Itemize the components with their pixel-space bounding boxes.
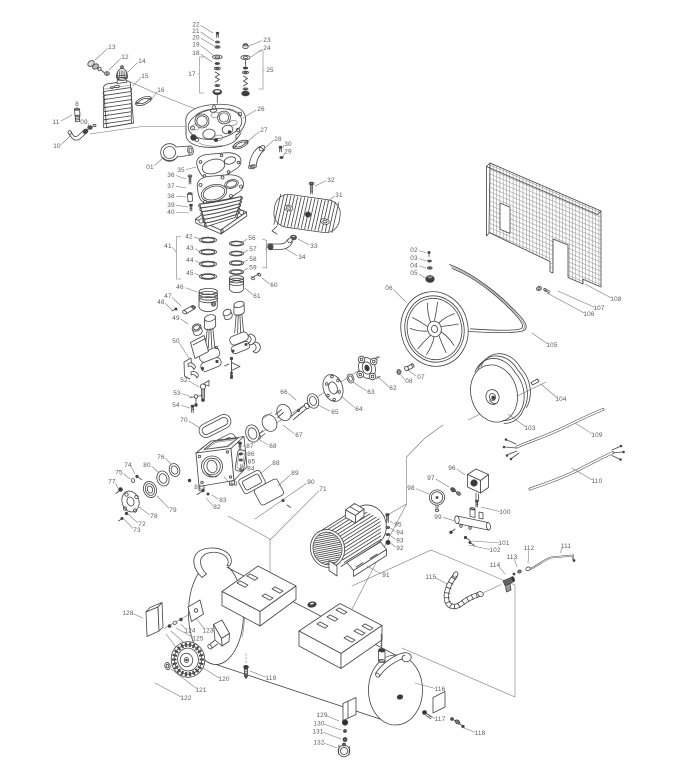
svg-text:129: 129 bbox=[316, 712, 328, 719]
svg-text:101: 101 bbox=[498, 540, 510, 547]
svg-text:58: 58 bbox=[249, 256, 257, 263]
svg-text:83: 83 bbox=[219, 497, 227, 504]
svg-text:91: 91 bbox=[382, 572, 390, 579]
svg-text:64: 64 bbox=[355, 406, 363, 413]
svg-text:61: 61 bbox=[253, 293, 261, 300]
svg-text:76: 76 bbox=[157, 454, 165, 461]
svg-text:119: 119 bbox=[266, 675, 277, 682]
svg-text:125: 125 bbox=[192, 636, 204, 643]
svg-text:30: 30 bbox=[284, 141, 292, 148]
svg-text:20: 20 bbox=[192, 34, 200, 41]
svg-text:107: 107 bbox=[593, 305, 605, 312]
svg-text:08: 08 bbox=[405, 378, 413, 385]
svg-text:23: 23 bbox=[263, 37, 271, 44]
svg-text:90: 90 bbox=[307, 479, 315, 486]
svg-text:79: 79 bbox=[169, 507, 177, 514]
svg-text:60: 60 bbox=[270, 282, 278, 289]
svg-text:16: 16 bbox=[157, 87, 165, 94]
svg-text:75: 75 bbox=[115, 470, 123, 477]
svg-text:130: 130 bbox=[313, 721, 325, 728]
svg-text:128: 128 bbox=[122, 610, 134, 617]
svg-text:93: 93 bbox=[396, 538, 404, 545]
svg-text:131: 131 bbox=[312, 729, 324, 736]
svg-text:06: 06 bbox=[385, 285, 393, 292]
svg-text:35: 35 bbox=[177, 167, 185, 174]
svg-text:62: 62 bbox=[389, 385, 397, 392]
svg-text:112: 112 bbox=[524, 545, 535, 552]
svg-text:68: 68 bbox=[269, 443, 277, 450]
svg-text:24: 24 bbox=[263, 45, 271, 52]
svg-text:10: 10 bbox=[53, 143, 61, 150]
svg-text:26: 26 bbox=[257, 106, 265, 113]
svg-text:99: 99 bbox=[434, 514, 442, 521]
svg-text:45: 45 bbox=[186, 270, 194, 277]
svg-text:118: 118 bbox=[475, 730, 486, 737]
svg-text:42: 42 bbox=[185, 234, 193, 241]
svg-text:33: 33 bbox=[310, 243, 318, 250]
svg-text:113: 113 bbox=[507, 554, 518, 561]
svg-text:86: 86 bbox=[247, 451, 255, 458]
svg-text:120: 120 bbox=[218, 676, 230, 683]
svg-text:14: 14 bbox=[138, 58, 146, 65]
svg-text:25: 25 bbox=[266, 67, 274, 74]
svg-text:46: 46 bbox=[176, 284, 184, 291]
svg-text:81: 81 bbox=[194, 484, 202, 491]
svg-text:37: 37 bbox=[167, 183, 175, 190]
svg-text:92: 92 bbox=[396, 545, 404, 552]
svg-text:98: 98 bbox=[407, 485, 415, 492]
svg-text:19: 19 bbox=[192, 41, 200, 48]
svg-text:63: 63 bbox=[367, 389, 375, 396]
svg-text:66: 66 bbox=[280, 389, 288, 396]
svg-text:69: 69 bbox=[230, 481, 238, 488]
svg-text:96: 96 bbox=[448, 465, 456, 472]
svg-text:36: 36 bbox=[167, 172, 175, 179]
svg-text:109: 109 bbox=[591, 432, 603, 439]
svg-text:102: 102 bbox=[489, 547, 501, 554]
svg-text:34: 34 bbox=[298, 254, 306, 261]
svg-text:15: 15 bbox=[141, 73, 149, 80]
svg-text:74: 74 bbox=[124, 462, 132, 469]
svg-text:122: 122 bbox=[180, 695, 192, 702]
svg-text:03: 03 bbox=[410, 255, 418, 262]
svg-text:56: 56 bbox=[248, 235, 256, 242]
svg-text:18: 18 bbox=[192, 50, 200, 57]
svg-text:39: 39 bbox=[167, 202, 175, 209]
svg-text:114: 114 bbox=[490, 562, 501, 569]
svg-text:28: 28 bbox=[274, 136, 282, 143]
svg-text:78: 78 bbox=[150, 513, 158, 520]
svg-text:121: 121 bbox=[195, 687, 207, 694]
svg-text:82: 82 bbox=[213, 504, 221, 511]
svg-text:115: 115 bbox=[426, 574, 437, 581]
svg-text:13: 13 bbox=[108, 44, 116, 51]
svg-text:52: 52 bbox=[180, 377, 188, 384]
svg-text:04: 04 bbox=[410, 263, 418, 270]
svg-text:07: 07 bbox=[417, 374, 425, 381]
svg-text:54: 54 bbox=[172, 402, 180, 409]
svg-text:100: 100 bbox=[499, 509, 511, 516]
svg-text:50: 50 bbox=[172, 338, 180, 345]
svg-text:77: 77 bbox=[108, 479, 116, 486]
svg-text:32: 32 bbox=[327, 177, 335, 184]
svg-text:97: 97 bbox=[427, 475, 435, 482]
svg-text:110: 110 bbox=[592, 478, 603, 485]
svg-text:38: 38 bbox=[167, 193, 175, 200]
svg-text:95: 95 bbox=[394, 522, 402, 529]
svg-text:49: 49 bbox=[172, 315, 180, 322]
svg-text:85: 85 bbox=[248, 459, 256, 466]
svg-text:48: 48 bbox=[157, 299, 165, 306]
svg-text:11: 11 bbox=[52, 119, 59, 126]
svg-text:80: 80 bbox=[143, 462, 151, 469]
svg-text:106: 106 bbox=[583, 311, 595, 318]
svg-text:89: 89 bbox=[291, 470, 299, 477]
svg-text:44: 44 bbox=[186, 257, 194, 264]
svg-text:73: 73 bbox=[133, 527, 141, 534]
svg-text:17: 17 bbox=[188, 71, 196, 78]
svg-text:94: 94 bbox=[396, 530, 404, 537]
svg-text:70: 70 bbox=[180, 417, 188, 424]
svg-text:31: 31 bbox=[335, 192, 343, 199]
svg-text:104: 104 bbox=[555, 396, 567, 403]
svg-text:02: 02 bbox=[410, 247, 418, 254]
svg-text:65: 65 bbox=[331, 409, 339, 416]
svg-text:12: 12 bbox=[121, 54, 129, 61]
svg-text:108: 108 bbox=[610, 296, 622, 303]
svg-text:88: 88 bbox=[272, 460, 280, 467]
svg-text:41: 41 bbox=[164, 243, 172, 250]
svg-text:111: 111 bbox=[561, 543, 572, 550]
svg-text:05: 05 bbox=[410, 270, 418, 277]
svg-text:105: 105 bbox=[546, 342, 558, 349]
svg-text:53: 53 bbox=[173, 390, 181, 397]
svg-text:103: 103 bbox=[524, 425, 536, 432]
svg-text:67: 67 bbox=[295, 432, 303, 439]
svg-text:40: 40 bbox=[167, 209, 175, 216]
svg-text:01: 01 bbox=[146, 164, 154, 171]
svg-text:29: 29 bbox=[284, 149, 292, 156]
svg-text:87: 87 bbox=[246, 443, 254, 450]
svg-text:55: 55 bbox=[266, 243, 274, 250]
svg-text:09: 09 bbox=[80, 119, 88, 126]
svg-text:43: 43 bbox=[186, 245, 194, 252]
svg-text:117: 117 bbox=[435, 716, 446, 723]
svg-text:47: 47 bbox=[164, 293, 172, 300]
svg-text:59: 59 bbox=[249, 265, 257, 272]
svg-text:27: 27 bbox=[260, 127, 268, 134]
svg-text:132: 132 bbox=[313, 740, 325, 747]
svg-text:57: 57 bbox=[249, 246, 257, 253]
svg-text:71: 71 bbox=[319, 486, 327, 493]
